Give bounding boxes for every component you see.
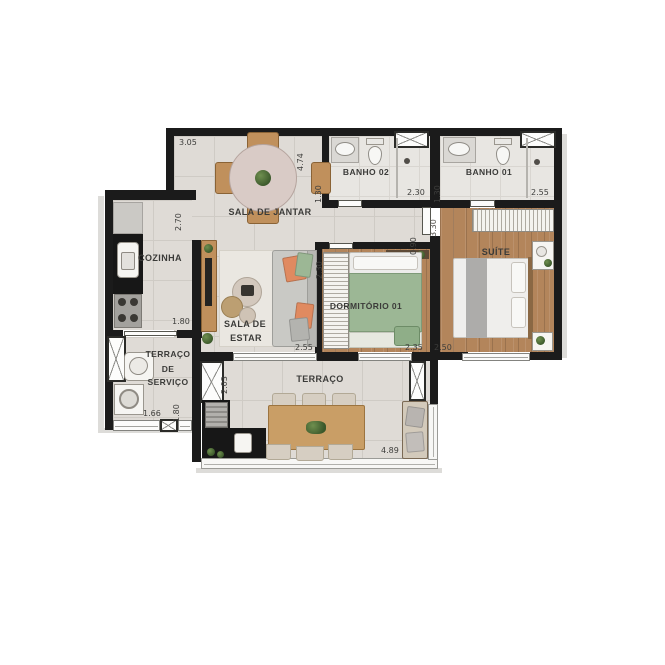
dim-hall: 0.90: [409, 237, 418, 255]
window-servico-a: [113, 420, 160, 431]
sofa-cushion: [294, 252, 313, 278]
wall-outer-left: [105, 200, 113, 430]
dim-estar-bottom: 2.55: [295, 343, 313, 352]
room-label-banho-01: BANHO 01: [454, 167, 524, 177]
room-label-suite: SUÍTE: [471, 247, 521, 257]
stove-burner: [130, 314, 138, 322]
dim-banho01-left: 1.30: [433, 185, 442, 203]
bathroom-sink: [335, 142, 355, 156]
dim-servico-bottom: 1.66: [143, 409, 161, 418]
dim-terraco-left: 2.03: [220, 376, 229, 394]
plant-icon: [204, 244, 213, 253]
dim-banho02-bottom: 2.30: [407, 188, 425, 197]
wall-top: [166, 128, 562, 136]
dim-sala-jantar-right: 4.74: [296, 153, 305, 171]
wall-dorm-top-b: [353, 242, 435, 249]
room-label-terraco: TERRAÇO: [290, 374, 350, 384]
fridge: [113, 202, 143, 234]
bed-pillow: [511, 262, 526, 293]
duct-shaft-icon: [409, 361, 426, 401]
wall-banho-bottom-c: [438, 200, 470, 208]
room-label-terraco-servico-line2: DE: [140, 364, 196, 374]
plant-icon: [544, 259, 552, 267]
wall-mid-column-lower: [430, 236, 440, 358]
room-label-banho-02: BANHO 02: [331, 167, 401, 177]
sofa-cushion: [289, 317, 310, 342]
plant-icon: [536, 336, 545, 345]
coffee-table-tray: [241, 285, 254, 296]
bed-runner: [466, 258, 487, 338]
shadow-left: [98, 196, 104, 432]
plant-icon: [306, 421, 326, 434]
toilet-tank: [366, 138, 384, 145]
door-banho01: [470, 200, 495, 207]
door-servico: [124, 331, 177, 336]
wall-outer-right: [554, 136, 562, 354]
room-label-terraco-servico-line1: TERRAÇO: [140, 349, 196, 359]
wardrobe: [472, 209, 554, 232]
dim-banho02-left: 1.30: [314, 185, 323, 203]
tv: [205, 258, 212, 306]
room-label-dormitorio-01: DORMITÓRIO 01: [323, 301, 409, 311]
bathroom-sink: [448, 142, 470, 156]
dim-banho01-bottom: 2.55: [531, 188, 549, 197]
room-label-cozinha: COZINHA: [125, 253, 195, 263]
room-label-sala-de-estar-line2: ESTAR: [211, 333, 281, 343]
terrace-chair: [296, 446, 324, 461]
dim-dorm-bottom: 2.35: [405, 343, 423, 352]
toilet-tank: [494, 138, 512, 145]
dim-suite-left: 3.30: [429, 219, 438, 237]
plant-icon: [255, 170, 271, 186]
terrace-chair: [266, 444, 291, 460]
shower-glass: [526, 138, 528, 198]
plant-icon: [207, 448, 215, 456]
terrace-chair: [328, 444, 353, 460]
floor-plan: SALA DE JANTAR BANHO 02 BANHO 01 COZINHA…: [0, 0, 665, 665]
wall-kitchen-top: [105, 190, 196, 200]
sliding-door-dorm: [358, 353, 412, 361]
door-banho02: [338, 200, 362, 207]
dim-cozinha-bottom: 1.80: [172, 317, 190, 326]
room-label-sala-de-estar-line1: SALA DE: [210, 319, 280, 329]
sofa-cushion: [405, 406, 426, 428]
washer-drum: [119, 389, 139, 409]
terrace-sink: [234, 433, 252, 453]
room-label-terraco-servico-line3: SERVIÇO: [140, 377, 196, 387]
dim-suite-bottom: 2.50: [434, 343, 452, 352]
stove-burner: [118, 298, 126, 306]
shadow-right: [562, 134, 567, 358]
sliding-door-estar: [233, 353, 317, 361]
wall-suite-bottom-b: [530, 352, 562, 360]
dim-dorm-left: 2.30: [315, 261, 324, 279]
room-label-sala-de-jantar: SALA DE JANTAR: [200, 207, 340, 217]
dim-terraco-bottom: 4.89: [381, 446, 399, 455]
stove-burner: [130, 298, 138, 306]
stove-burner: [118, 314, 126, 322]
wall-terraco-top-b: [317, 352, 358, 361]
dim-cozinha-right: 2.70: [174, 213, 183, 231]
shower-drain: [404, 158, 410, 164]
bed-pillow: [353, 256, 418, 270]
plant-icon: [217, 451, 224, 458]
window-suite: [462, 353, 530, 361]
shower-drain: [534, 159, 540, 165]
grill: [205, 402, 228, 428]
door-dormitorio: [329, 243, 353, 249]
dim-servico-right: 1.80: [172, 404, 181, 422]
wall-terraco-right: [430, 358, 438, 406]
wall-dining-left: [166, 136, 174, 190]
dresser-decor: [536, 246, 547, 257]
sofa-cushion: [405, 431, 425, 452]
bed-pillow: [511, 297, 526, 328]
terrace-railing-right: [428, 404, 438, 460]
dim-sala-jantar-top: 3.05: [179, 138, 197, 147]
wall-terraco-top-a: [200, 352, 233, 361]
duct-shaft-icon: [394, 131, 429, 148]
wall-banho-bottom-d: [495, 200, 562, 208]
